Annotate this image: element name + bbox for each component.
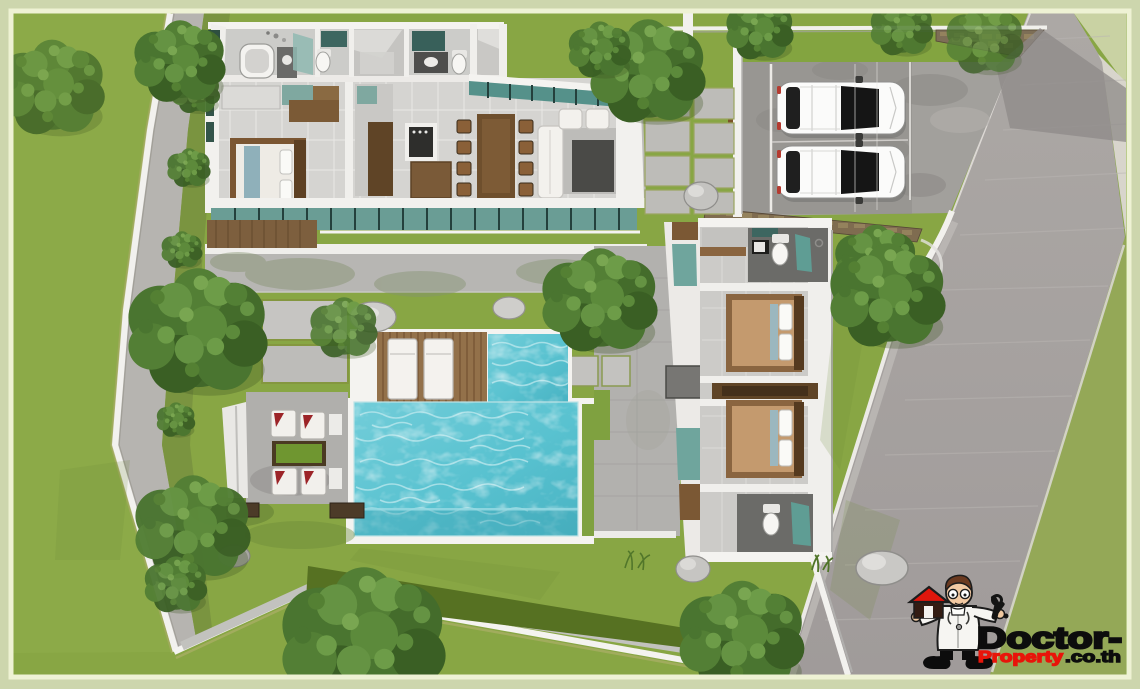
svg-text:Property: Property [978,649,1063,666]
svg-text:.co.th: .co.th [1065,649,1121,666]
